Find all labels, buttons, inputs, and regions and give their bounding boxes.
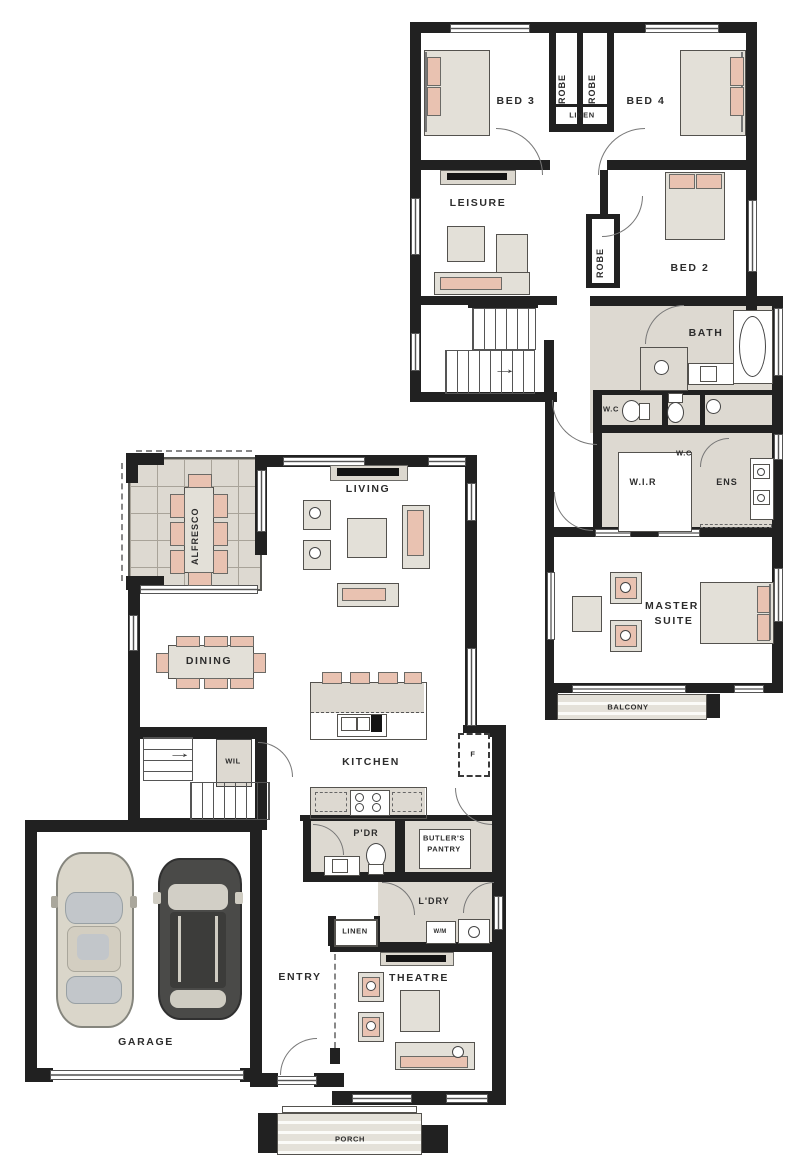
plan-detail bbox=[215, 916, 218, 982]
room-label-master-1: MASTER bbox=[645, 600, 699, 612]
alfresco-corner bbox=[126, 453, 138, 483]
plan-detail bbox=[332, 859, 348, 873]
floor-plan-canvas: → bbox=[0, 0, 800, 1174]
plan-detail bbox=[355, 793, 364, 802]
dining-chair bbox=[176, 636, 200, 647]
dining-chair bbox=[253, 653, 266, 673]
outdoor-chair bbox=[170, 522, 185, 546]
room-label-kitchen: KITCHEN bbox=[342, 756, 400, 768]
room-label-garage: GARAGE bbox=[118, 1036, 174, 1048]
car-light bbox=[56, 852, 134, 1028]
wall bbox=[303, 815, 311, 878]
plan-detail bbox=[355, 803, 364, 812]
wall bbox=[250, 820, 262, 1087]
room-label-theatre: THEATRE bbox=[389, 972, 449, 984]
room-label-dining: DINING bbox=[186, 655, 232, 667]
garage-door bbox=[50, 1070, 244, 1080]
plan-detail bbox=[700, 366, 717, 382]
dining-chair bbox=[230, 636, 254, 647]
wall bbox=[395, 815, 405, 878]
room-label-butlers-2: PANTRY bbox=[427, 845, 461, 854]
room-label-alfresco: ALFRESCO bbox=[190, 495, 200, 565]
room-fill bbox=[311, 683, 424, 713]
window bbox=[467, 648, 476, 726]
wardrobe-shelving bbox=[618, 452, 692, 532]
plan-detail bbox=[178, 916, 181, 982]
plan-detail bbox=[639, 403, 650, 420]
plan-detail bbox=[620, 630, 631, 641]
tv-icon bbox=[337, 468, 399, 476]
outdoor-chair bbox=[213, 494, 228, 518]
stairs-direction-arrow: → bbox=[168, 746, 193, 761]
pillow bbox=[427, 87, 441, 116]
plan-detail bbox=[452, 1046, 464, 1058]
table bbox=[447, 226, 485, 262]
wall bbox=[549, 124, 614, 132]
room-label-butlers-1: BUTLER'S bbox=[423, 834, 465, 843]
outdoor-chair bbox=[188, 572, 212, 586]
tv-icon bbox=[447, 173, 507, 180]
plan-detail bbox=[366, 1021, 376, 1031]
room-label-master-2: SUITE bbox=[655, 615, 694, 627]
window bbox=[129, 615, 138, 651]
wall bbox=[330, 1048, 340, 1064]
plan-detail bbox=[620, 582, 631, 593]
window bbox=[411, 333, 420, 371]
plan-detail bbox=[309, 507, 321, 519]
plan-detail bbox=[153, 892, 161, 904]
room-label-bed2: BED 2 bbox=[671, 262, 710, 274]
room-label-wil: WIL bbox=[225, 757, 241, 766]
dining-chair bbox=[204, 636, 228, 647]
plan-detail bbox=[235, 892, 243, 904]
wall bbox=[607, 22, 614, 126]
sliding-door bbox=[140, 585, 258, 594]
stool bbox=[350, 672, 370, 684]
window bbox=[352, 1094, 412, 1103]
fridge-label: F bbox=[470, 750, 475, 759]
plan-detail bbox=[357, 717, 370, 731]
wall bbox=[25, 820, 260, 832]
plan-detail bbox=[372, 803, 381, 812]
window bbox=[450, 24, 530, 33]
shower-head bbox=[654, 360, 669, 375]
outdoor-chair bbox=[213, 550, 228, 574]
plan-detail bbox=[342, 588, 386, 601]
window bbox=[645, 24, 719, 33]
wall bbox=[25, 820, 37, 1082]
stool bbox=[404, 672, 422, 684]
room-label-wc1: W.C bbox=[603, 405, 619, 414]
pillow bbox=[757, 614, 770, 641]
wall bbox=[549, 104, 614, 107]
plan-detail bbox=[168, 884, 228, 910]
pillow bbox=[730, 57, 744, 86]
window bbox=[734, 685, 764, 693]
room-label-robe1: ROBE bbox=[557, 44, 567, 104]
plan-detail bbox=[368, 864, 384, 875]
plan-detail bbox=[51, 896, 58, 908]
room-label-wir: W.I.R bbox=[630, 477, 657, 487]
porch-post bbox=[258, 1113, 277, 1153]
dining-chair bbox=[156, 653, 169, 673]
chair bbox=[496, 234, 528, 274]
stairs-direction-arrow: → bbox=[493, 362, 518, 377]
dining-chair bbox=[176, 678, 200, 689]
wall bbox=[545, 398, 554, 537]
window bbox=[774, 568, 783, 622]
outdoor-chair bbox=[213, 522, 228, 546]
room-label-bath: BATH bbox=[689, 327, 724, 339]
plan-detail bbox=[739, 316, 766, 377]
plan-detail bbox=[77, 934, 109, 960]
pillow bbox=[696, 174, 722, 189]
wall bbox=[544, 340, 554, 402]
sofa-cushion bbox=[440, 277, 502, 290]
outdoor-chair bbox=[170, 494, 185, 518]
pillow bbox=[730, 87, 744, 116]
pillow bbox=[669, 174, 695, 189]
room-label-bed4: BED 4 bbox=[627, 95, 666, 107]
car-dark bbox=[158, 858, 242, 1020]
room-label-linen-upper: LINEN bbox=[569, 111, 595, 120]
stairs-flight bbox=[190, 782, 270, 820]
front-door-threshold bbox=[277, 1076, 317, 1085]
wall bbox=[314, 1073, 344, 1087]
coffee-table bbox=[400, 990, 440, 1032]
outdoor-chair bbox=[170, 550, 185, 574]
plan-detail bbox=[392, 792, 422, 812]
plan-detail bbox=[341, 717, 357, 731]
plan-detail bbox=[468, 926, 480, 938]
window bbox=[446, 1094, 488, 1103]
coffee-table bbox=[347, 518, 387, 558]
stairs-lower-flight bbox=[445, 350, 535, 394]
window bbox=[411, 198, 420, 255]
window bbox=[547, 572, 555, 640]
plan-detail bbox=[309, 547, 321, 559]
plan-detail bbox=[282, 1106, 417, 1113]
wall bbox=[593, 425, 778, 433]
dining-chair bbox=[230, 678, 254, 689]
room-label-robe2: ROBE bbox=[587, 44, 597, 104]
outdoor-chair bbox=[188, 474, 212, 488]
room-label-pdr: P'DR bbox=[353, 828, 378, 838]
dining-chair bbox=[204, 678, 228, 689]
plan-detail bbox=[66, 976, 122, 1004]
plan-detail bbox=[121, 463, 123, 581]
plan-detail bbox=[757, 494, 765, 502]
stairs-upper-flight bbox=[472, 308, 536, 350]
window bbox=[774, 434, 783, 460]
room-label-ens: ENS bbox=[716, 477, 738, 487]
stool bbox=[322, 672, 342, 684]
plan-detail bbox=[366, 981, 376, 991]
window bbox=[494, 896, 503, 930]
room-label-linen-ground: LINEN bbox=[342, 927, 368, 936]
plan-detail bbox=[315, 792, 347, 812]
pillow bbox=[757, 586, 770, 613]
plan-detail bbox=[700, 524, 772, 528]
wall bbox=[590, 296, 783, 306]
wall bbox=[586, 283, 620, 288]
room-label-ldry: L'DRY bbox=[418, 896, 449, 906]
room-label-living: LIVING bbox=[346, 483, 391, 495]
wm-label: W/M bbox=[434, 929, 447, 935]
porch-post bbox=[420, 1125, 448, 1153]
room-label-porch: PORCH bbox=[335, 1135, 365, 1144]
plan-detail bbox=[170, 990, 226, 1008]
room-label-bed3: BED 3 bbox=[497, 95, 536, 107]
room-label-wc2: W.C bbox=[676, 449, 692, 458]
wall bbox=[549, 22, 556, 126]
room-label-entry: ENTRY bbox=[278, 971, 321, 983]
entry-theatre-divider bbox=[334, 954, 336, 1048]
pillow bbox=[427, 57, 441, 86]
plan-detail bbox=[757, 468, 765, 476]
side-table bbox=[572, 596, 602, 632]
window bbox=[748, 200, 757, 272]
room-label-leisure: LEISURE bbox=[450, 197, 507, 209]
window bbox=[774, 308, 783, 376]
window bbox=[572, 685, 686, 693]
stool bbox=[378, 672, 398, 684]
plan-detail bbox=[130, 896, 137, 908]
basin bbox=[706, 399, 721, 414]
toilet-icon bbox=[667, 402, 684, 423]
room-label-robe3: ROBE bbox=[595, 228, 605, 278]
window bbox=[467, 483, 476, 521]
wall bbox=[250, 1073, 278, 1087]
plan-detail bbox=[372, 793, 381, 802]
tv-icon bbox=[386, 955, 446, 962]
sliding-door bbox=[257, 470, 266, 532]
plan-detail bbox=[407, 510, 424, 556]
plan-detail bbox=[136, 450, 252, 452]
plan-detail bbox=[371, 715, 382, 732]
room-label-balcony: BALCONY bbox=[607, 703, 648, 712]
window bbox=[428, 457, 466, 466]
wall bbox=[25, 1068, 53, 1082]
plan-detail bbox=[65, 892, 123, 924]
